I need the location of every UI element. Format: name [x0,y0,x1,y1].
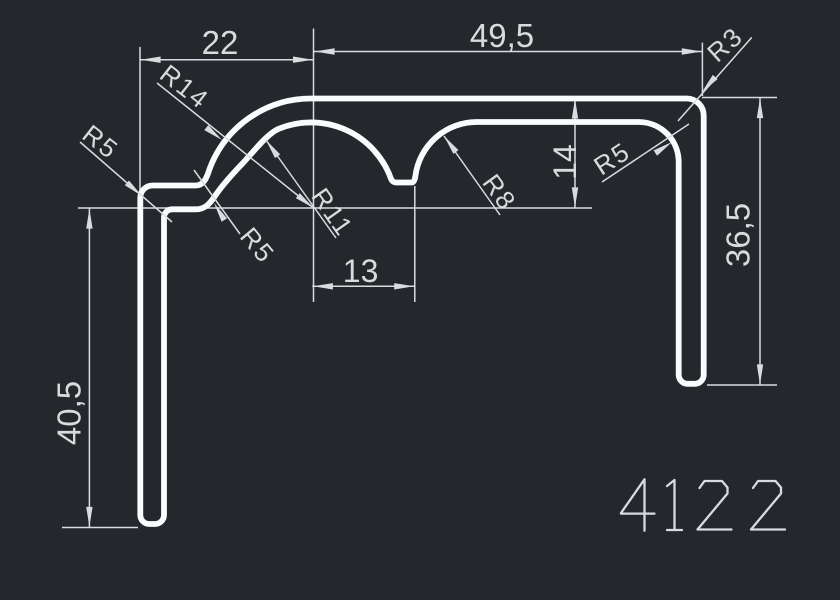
svg-text:13: 13 [343,253,379,289]
svg-text:49,5: 49,5 [470,17,534,54]
svg-text:22: 22 [202,24,239,61]
svg-text:36,5: 36,5 [720,203,757,267]
svg-text:40,5: 40,5 [51,381,88,445]
svg-text:14: 14 [547,144,583,180]
